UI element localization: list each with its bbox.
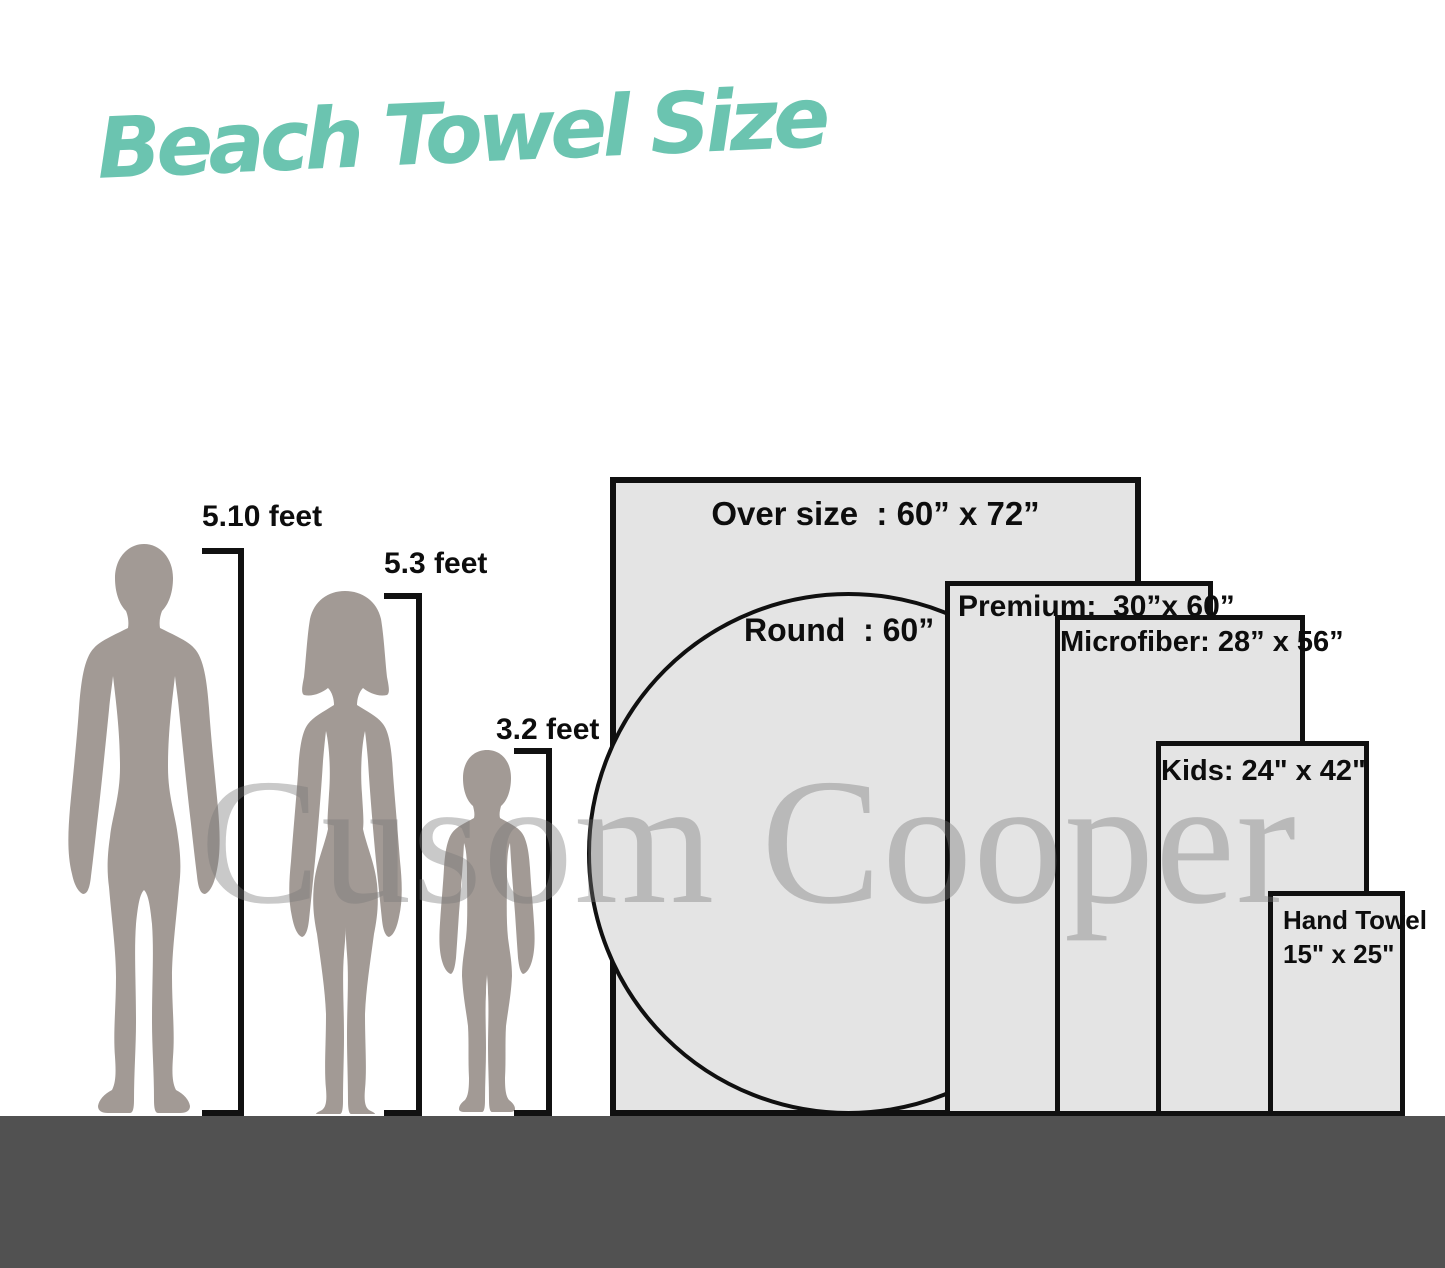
towel-hand-label-line2: 15" x 25" [1283,938,1400,972]
towel-microfiber-label: Microfiber: 28” x 56” [1060,626,1300,659]
towel-hand-label-line1: Hand Towel [1283,904,1400,938]
height-label-man: 5.10 feet [202,500,322,534]
beach-towel-size-infographic: Beach Towel Size 5.10 feet 5.3 feet 3.2 … [0,0,1445,1268]
towel-oversize-label: Over size : 60” x 72” [616,495,1135,533]
floor [0,1116,1445,1268]
height-label-woman: 5.3 feet [384,547,487,581]
man-silhouette-shape [68,544,219,1113]
towel-round-label: Round : 60” [744,612,934,649]
page-title: Beach Towel Size [95,68,827,198]
watermark: Cusom Cooper [200,752,1297,932]
